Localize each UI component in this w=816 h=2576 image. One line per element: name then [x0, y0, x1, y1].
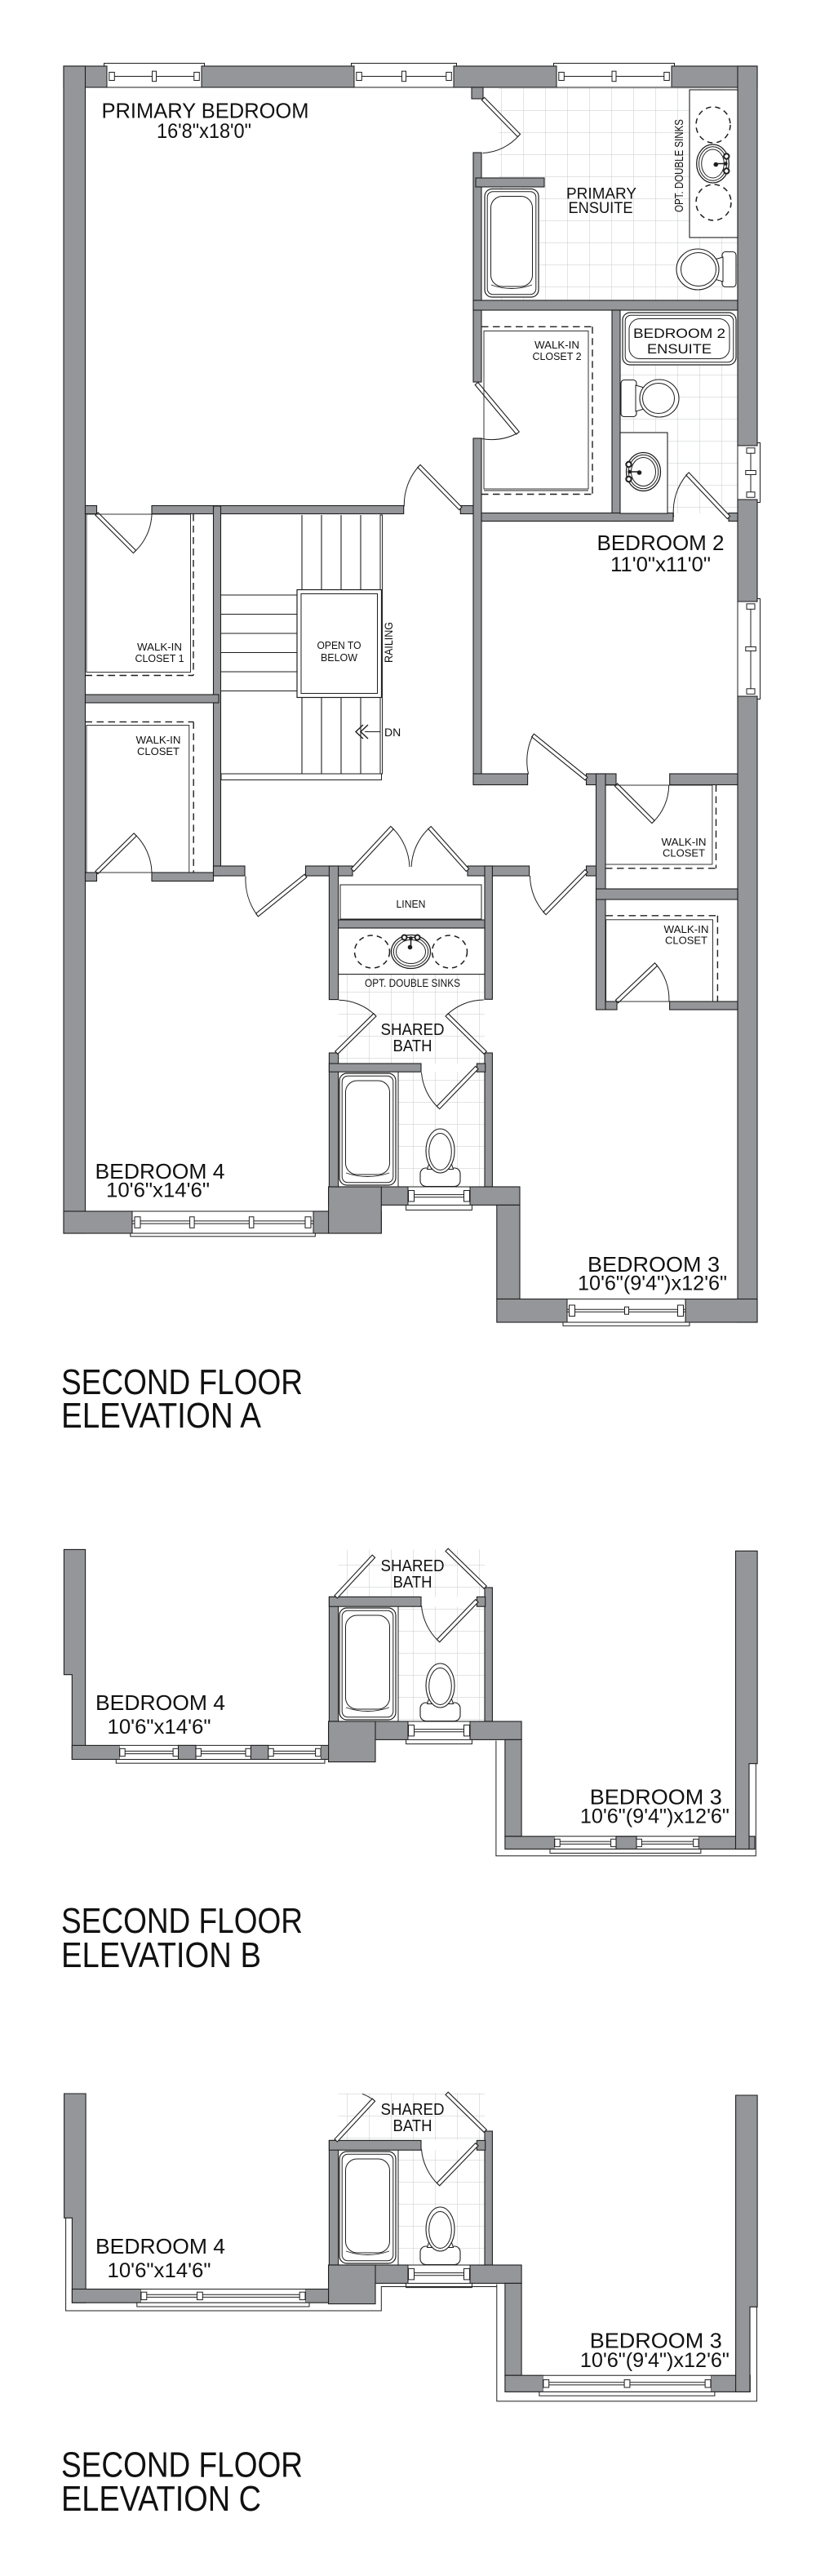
svg-text:CLOSET 2: CLOSET 2	[533, 350, 582, 362]
svg-text:10'6"(9'4")x12'6": 10'6"(9'4")x12'6"	[580, 1805, 730, 1828]
svg-text:BEDROOM 4: BEDROOM 4	[95, 1690, 225, 1715]
svg-text:CLOSET: CLOSET	[137, 745, 180, 757]
svg-text:CLOSET: CLOSET	[665, 935, 707, 947]
svg-text:16'8"x18'0": 16'8"x18'0"	[157, 120, 251, 143]
svg-text:OPT. DOUBLE SINKS: OPT. DOUBLE SINKS	[672, 119, 686, 212]
svg-text:BEDROOM 2: BEDROOM 2	[597, 531, 725, 555]
svg-text:11'0"x11'0": 11'0"x11'0"	[610, 553, 711, 576]
svg-text:SHARED: SHARED	[381, 1557, 445, 1575]
svg-text:RAILING: RAILING	[383, 622, 395, 663]
svg-text:10'6"(9'4")x12'6": 10'6"(9'4")x12'6"	[580, 2349, 730, 2372]
svg-text:CLOSET: CLOSET	[663, 847, 705, 859]
svg-text:SHARED: SHARED	[381, 1021, 445, 1039]
svg-text:BEDROOM 2: BEDROOM 2	[633, 326, 725, 341]
svg-text:BATH: BATH	[393, 2117, 432, 2135]
svg-text:ENSUITE: ENSUITE	[569, 200, 633, 217]
svg-text:10'6"x14'6": 10'6"x14'6"	[108, 2259, 211, 2282]
svg-text:10'6"x14'6": 10'6"x14'6"	[108, 1716, 211, 1739]
svg-text:WALK-IN: WALK-IN	[136, 734, 181, 746]
svg-text:BATH: BATH	[393, 1574, 432, 1592]
svg-text:ELEVATION A: ELEVATION A	[61, 1396, 262, 1436]
svg-text:ELEVATION B: ELEVATION B	[61, 1935, 261, 1975]
svg-text:BATH: BATH	[393, 1037, 432, 1055]
svg-text:PRIMARY BEDROOM: PRIMARY BEDROOM	[102, 99, 309, 123]
svg-text:ELEVATION C: ELEVATION C	[61, 2479, 261, 2519]
svg-text:OPT. DOUBLE SINKS: OPT. DOUBLE SINKS	[365, 976, 460, 989]
svg-text:CLOSET 1: CLOSET 1	[135, 652, 184, 664]
svg-text:BELOW: BELOW	[321, 651, 358, 664]
svg-text:WALK-IN: WALK-IN	[534, 339, 579, 351]
svg-text:LINEN: LINEN	[397, 898, 426, 910]
svg-text:DN: DN	[384, 726, 401, 739]
svg-text:BEDROOM 4: BEDROOM 4	[95, 2234, 225, 2258]
svg-text:10'6"(9'4")x12'6": 10'6"(9'4")x12'6"	[578, 1272, 727, 1295]
svg-text:SHARED: SHARED	[381, 2101, 445, 2119]
svg-text:ENSUITE: ENSUITE	[647, 341, 712, 357]
svg-text:OPEN TO: OPEN TO	[317, 639, 361, 651]
svg-text:WALK-IN: WALK-IN	[137, 641, 182, 653]
svg-text:10'6"x14'6": 10'6"x14'6"	[106, 1179, 210, 1202]
